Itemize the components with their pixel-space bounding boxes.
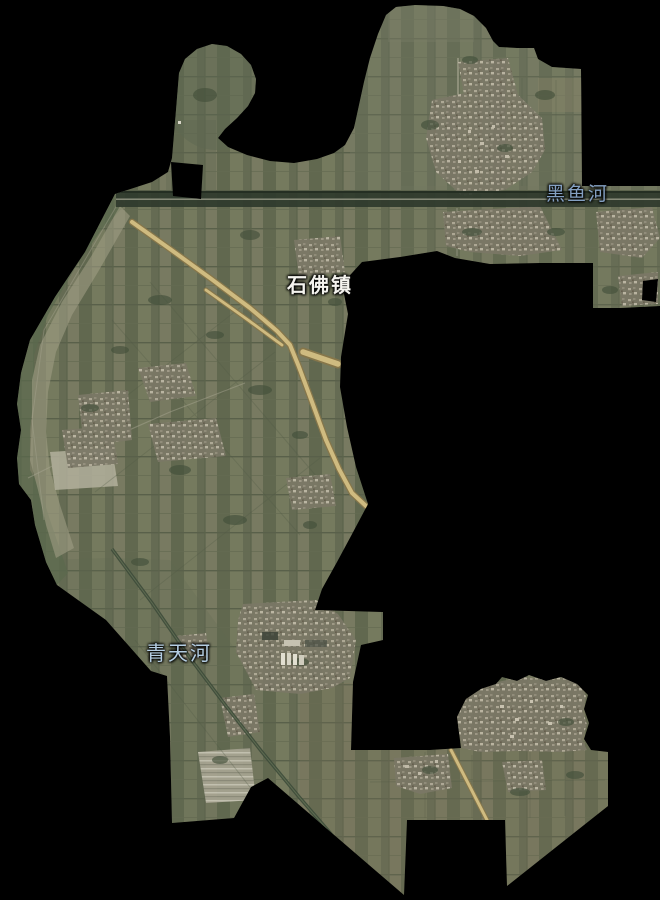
village-cluster [286,474,336,510]
label-river-qingtian: 青天河 [146,643,212,663]
label-river-heiyu: 黑鱼河 [546,185,609,204]
label-town-shifo: 石佛镇 [287,275,353,295]
village-cluster [148,418,226,462]
village-cluster [502,760,546,792]
black-notch [171,162,203,199]
satellite-map-canvas[interactable]: 石佛镇 黑鱼河 青天河 [0,0,660,900]
village-cluster [294,236,345,277]
village-cluster [458,58,518,100]
town-center-cluster [236,600,356,694]
village-cluster [394,754,452,794]
black-notch [642,279,658,302]
map-graphics [0,0,660,900]
village-cluster [78,390,132,446]
